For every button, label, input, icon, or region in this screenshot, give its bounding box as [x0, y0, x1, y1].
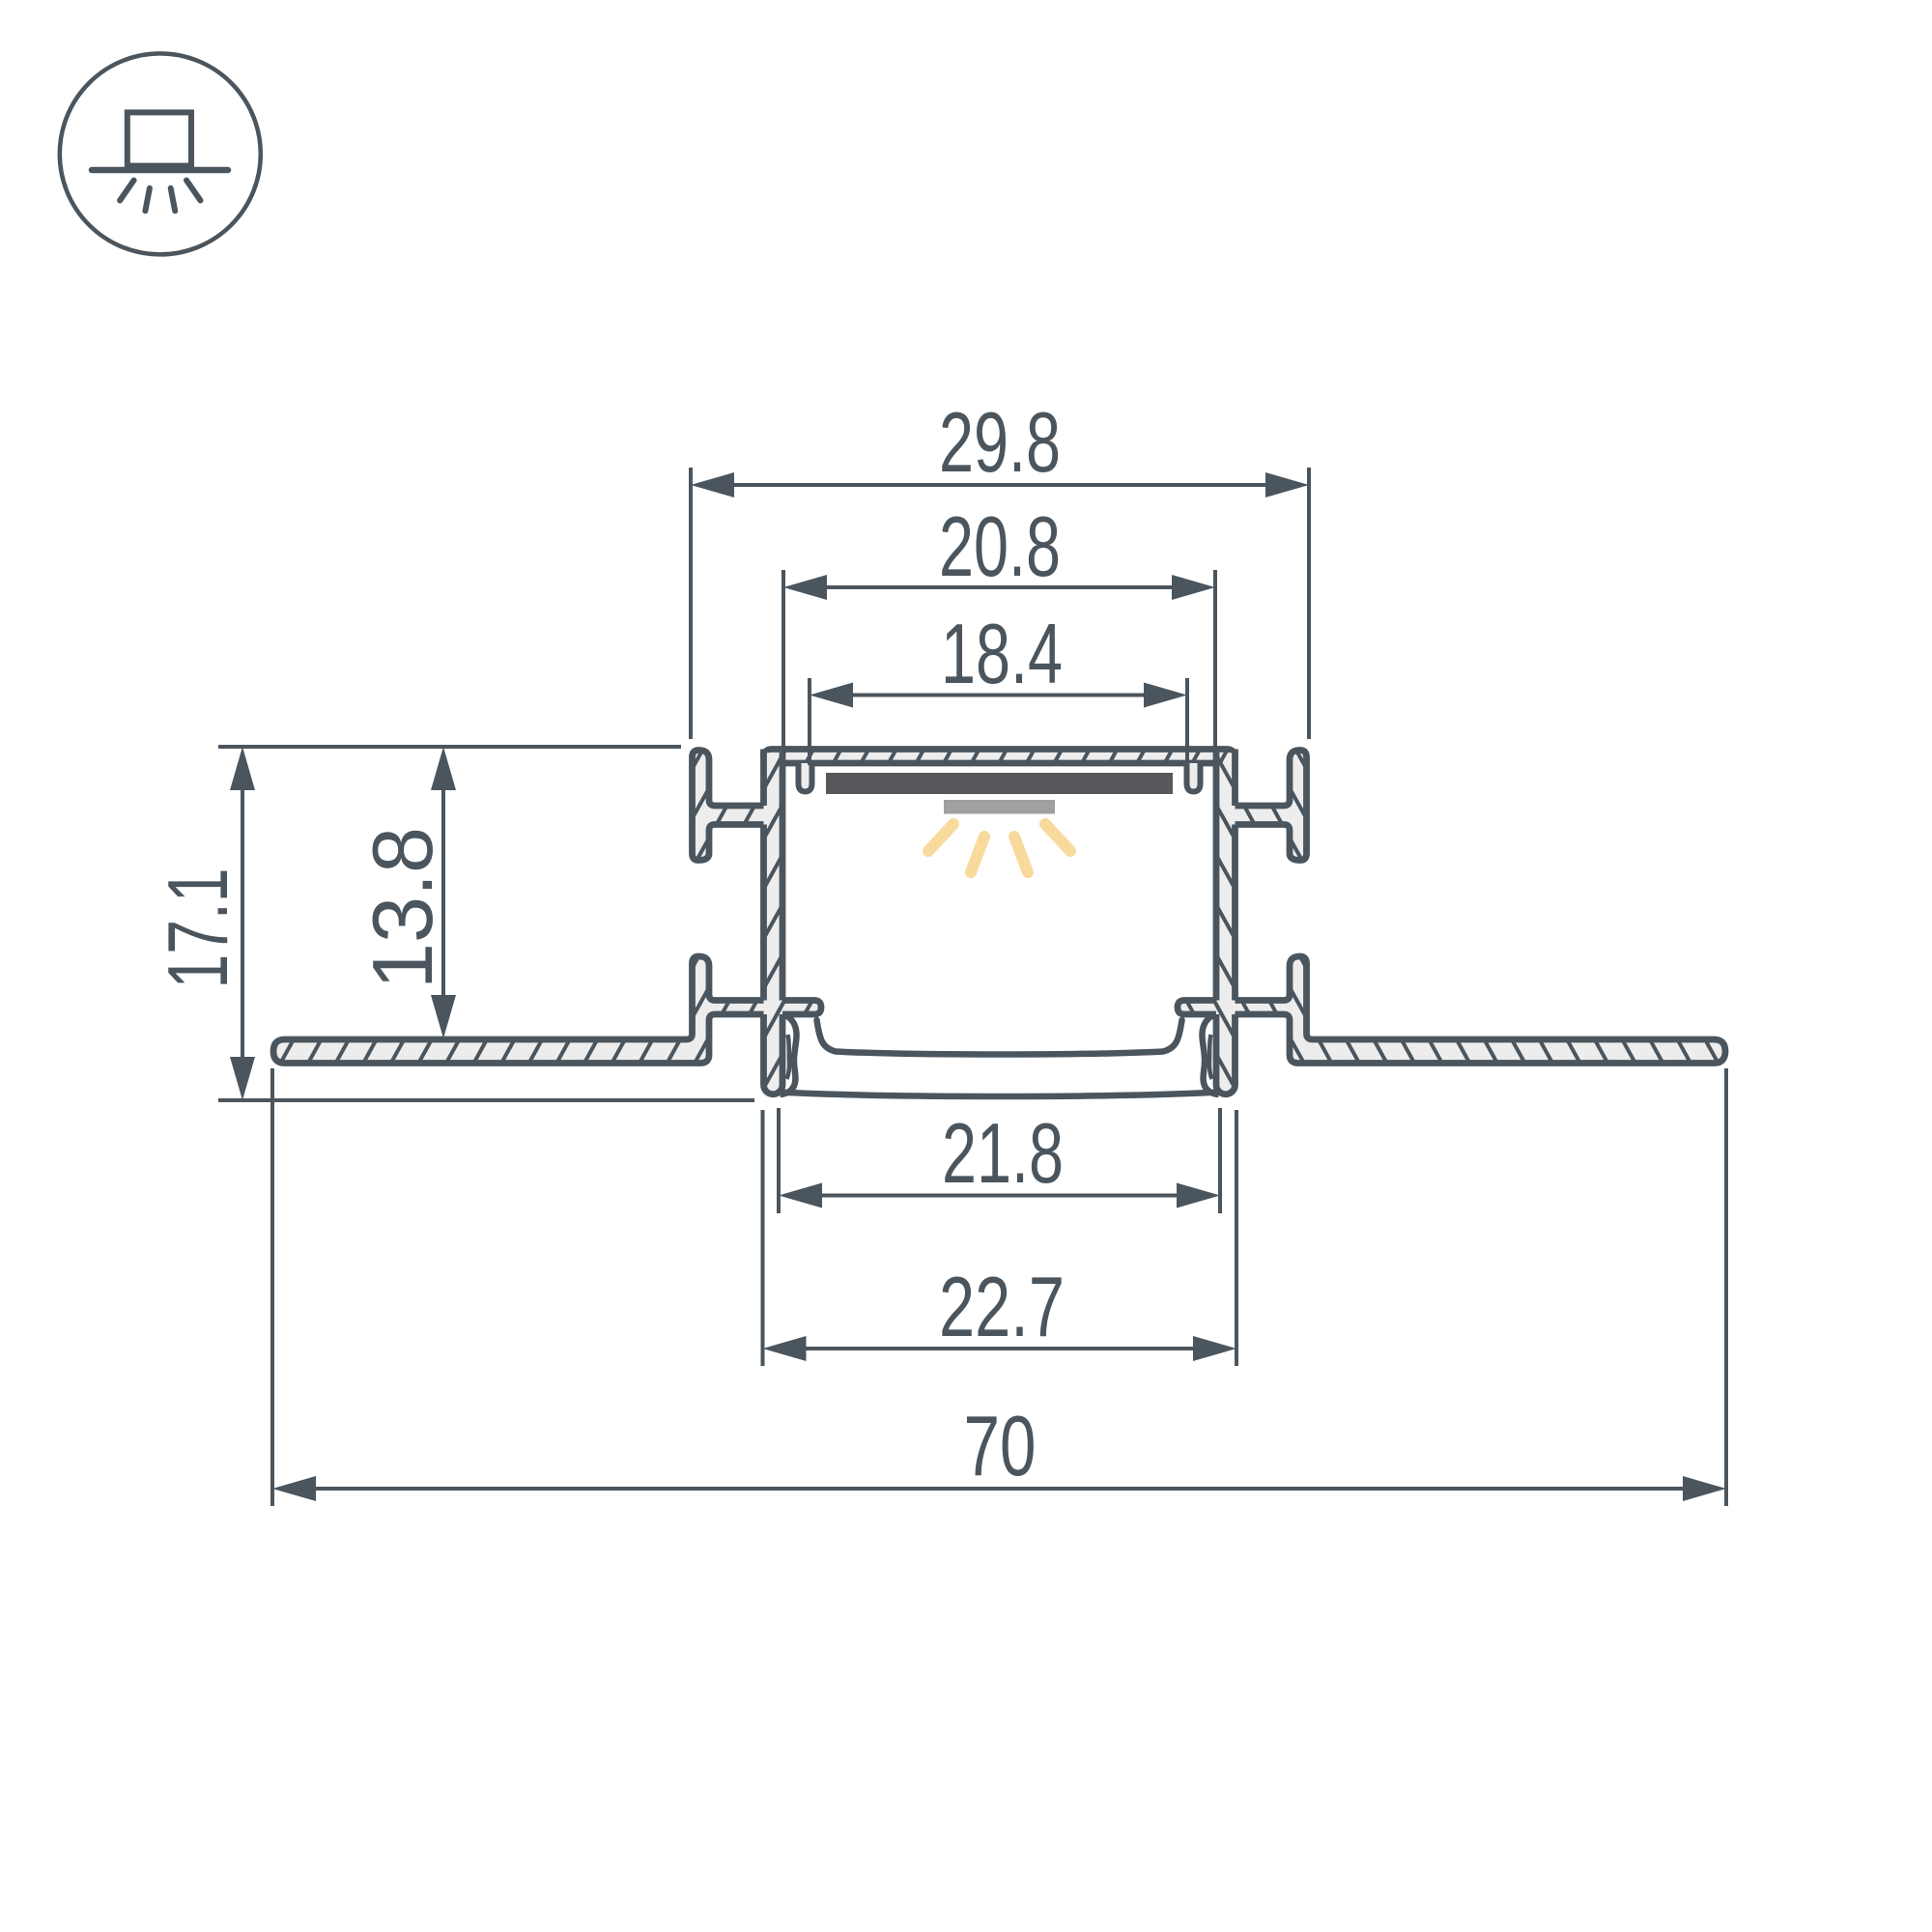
svg-text:20.8: 20.8: [939, 498, 1061, 594]
svg-text:22.7: 22.7: [939, 1259, 1065, 1354]
svg-text:29.8: 29.8: [939, 394, 1061, 490]
svg-text:70: 70: [964, 1398, 1037, 1493]
svg-text:21.8: 21.8: [942, 1105, 1064, 1201]
svg-text:13.8: 13.8: [355, 827, 450, 989]
svg-text:17.1: 17.1: [150, 868, 245, 989]
svg-text:18.4: 18.4: [941, 606, 1063, 701]
